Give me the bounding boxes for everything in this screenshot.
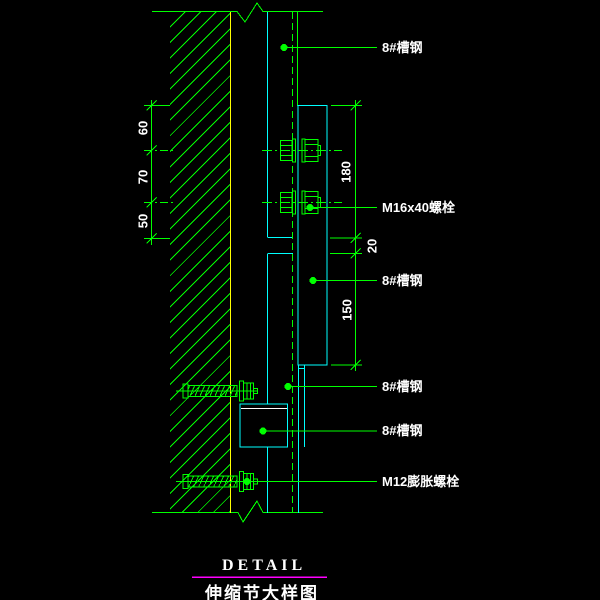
leaders — [244, 44, 378, 485]
drawing-linework — [0, 0, 600, 600]
m16-bolt-lower — [262, 191, 342, 214]
detail-title-en: DETAIL — [222, 557, 306, 575]
dim-50: 50 — [136, 213, 151, 227]
detail-title-zh: 伸缩节大样图 — [205, 579, 319, 600]
dim-70: 70 — [136, 169, 151, 183]
label-bracket-channel: 8#槽钢 — [382, 423, 422, 439]
label-channel-top: 8#槽钢 — [382, 40, 422, 56]
dim-60: 60 — [136, 121, 151, 135]
label-vertical-channel: 8#槽钢 — [382, 379, 422, 395]
label-m16-bolt: M16x40螺栓 — [382, 200, 455, 216]
dimension-right — [330, 100, 362, 371]
dim-180: 180 — [339, 161, 354, 183]
m16-bolt-upper — [262, 139, 342, 162]
dim-150: 150 — [340, 299, 355, 321]
bottom-break-line — [152, 501, 323, 522]
label-m12-anchor: M12膨胀螺栓 — [382, 474, 459, 490]
cad-detail-drawing: 8#槽钢 M16x40螺栓 8#槽钢 8#槽钢 8#槽钢 M12膨胀螺栓 60 … — [0, 0, 600, 600]
m12-anchor-upper — [176, 381, 258, 401]
bracket-channel — [240, 404, 288, 447]
label-splice-channel: 8#槽钢 — [382, 273, 422, 289]
dim-20: 20 — [365, 238, 380, 252]
vertical-channel-edges — [268, 12, 305, 513]
